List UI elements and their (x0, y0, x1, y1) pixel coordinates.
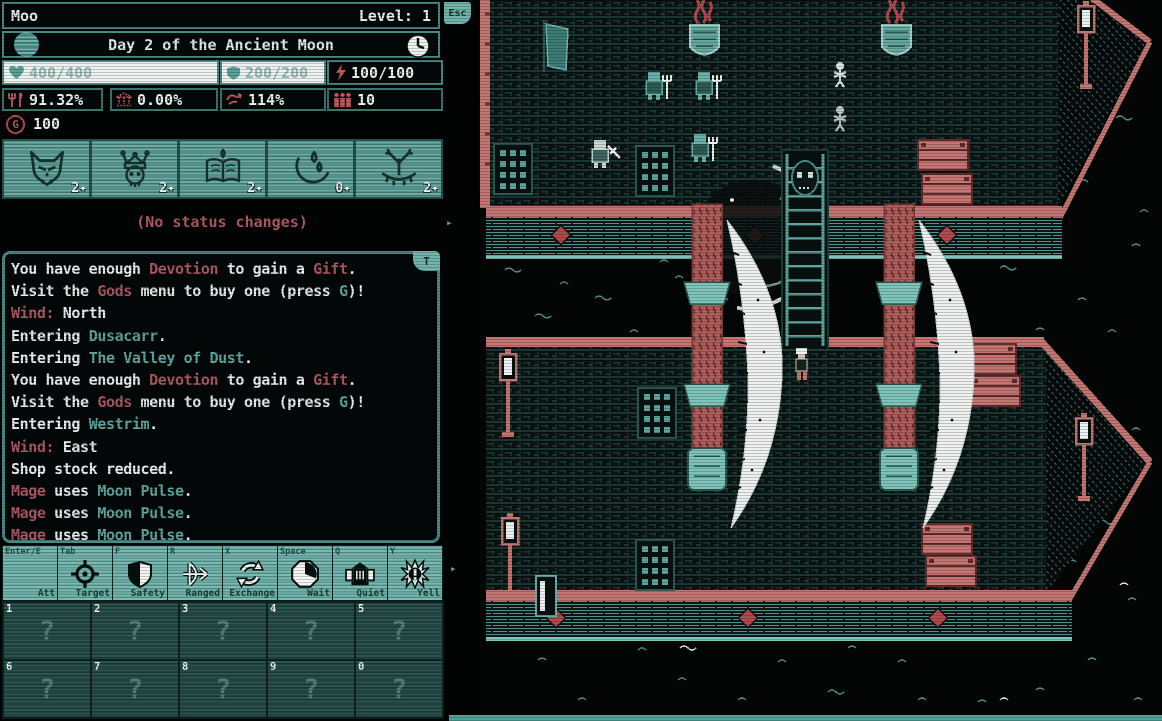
cargo-crate (922, 174, 972, 204)
slot-number: 3 (182, 603, 188, 615)
action-label: Ranged (186, 588, 220, 599)
sigil-moon[interactable]: 0✦ (266, 139, 355, 199)
hotkey-label: R (170, 547, 175, 557)
log-line: Visit the Gods menu to buy one (press G)… (11, 391, 435, 413)
status-line: (No status changes) (0, 213, 444, 231)
hotbar-safety-button[interactable]: F Safety (112, 545, 168, 601)
wind-stat: 114% (220, 88, 326, 111)
slot-number: 7 (94, 661, 100, 673)
quick-slot-9[interactable]: 9? (266, 659, 356, 719)
slot-placeholder: ? (92, 603, 178, 659)
action-label: Wait (307, 588, 330, 599)
slot-number: 9 (270, 661, 276, 673)
deck-flag (544, 20, 568, 72)
food-value: 91.32% (29, 91, 83, 109)
slot-placeholder: ? (92, 661, 178, 717)
deck-grate (494, 144, 532, 194)
crosshair-icon (70, 559, 100, 589)
antler-icon (376, 148, 422, 190)
slot-number: 1 (6, 603, 12, 615)
slot-placeholder: ? (356, 661, 442, 717)
wolf-icon (24, 148, 70, 190)
figurehead-skull (792, 161, 818, 195)
bow-arrow-icon (180, 559, 210, 589)
action-label: Yell (417, 588, 440, 599)
action-label: Safety (131, 588, 165, 599)
ship-bottom[interactable] (486, 337, 1150, 641)
action-label: Att (38, 588, 55, 599)
horn-building-icon (345, 560, 375, 588)
day-banner: Day 2 of the Ancient Moon (2, 31, 440, 58)
hotbar-target-button[interactable]: Tab Target (57, 545, 113, 601)
hotkey-label: Space (280, 547, 306, 557)
hotkey-label: Tab (60, 547, 75, 557)
quick-slot-6[interactable]: 6? (2, 659, 92, 719)
quick-slot-3[interactable]: 3? (178, 601, 268, 661)
burst-icon (400, 559, 430, 589)
heart-icon (8, 65, 25, 80)
crew-villager[interactable] (692, 134, 717, 162)
esc-button[interactable]: Esc (444, 2, 471, 24)
quick-slot-1[interactable]: 1? (2, 601, 92, 661)
log-line: Mage uses Moon Pulse. (11, 502, 435, 524)
health-bar: 400/400 (2, 60, 219, 85)
hotbar-ranged-button[interactable]: R Ranged (167, 545, 223, 601)
tome-icon (201, 148, 245, 190)
crew-icon (333, 92, 352, 108)
energy-bar: 100/100 (327, 60, 443, 85)
moon-drops-icon (288, 148, 334, 190)
quick-slot-8[interactable]: 8? (178, 659, 268, 719)
hotkey-label: Enter/E (5, 547, 41, 557)
hotkey-label: Y (390, 547, 395, 557)
cycle-arrows-icon (235, 559, 265, 589)
crew-villager[interactable] (696, 72, 721, 100)
slot-placeholder: ? (356, 603, 442, 659)
hotbar-quiet-button[interactable]: Q Quiet (332, 545, 388, 601)
sigil-count: 2✦ (423, 181, 439, 196)
cargo-crate (970, 376, 1020, 406)
food-stat: 91.32% (2, 88, 103, 111)
gold-coin-icon: G (6, 115, 25, 134)
sigil-count: 0✦ (335, 181, 351, 196)
hull-planks (486, 601, 1072, 639)
sigil-wolf[interactable]: 2✦ (2, 139, 91, 199)
slot-number: 4 (270, 603, 276, 615)
health-value: 400/400 (29, 64, 92, 82)
quick-slot-7[interactable]: 7? (90, 659, 180, 719)
clock-icon (406, 34, 430, 58)
shield-icon (226, 65, 241, 81)
slot-number: 6 (6, 661, 12, 673)
crew-value: 10 (357, 91, 375, 109)
utensils-icon (8, 92, 24, 108)
sigil-tome[interactable]: 2✦ (178, 139, 267, 199)
panel-arrow-icon[interactable]: ▸ (450, 562, 457, 575)
cargo-crate (918, 140, 968, 170)
hotbar-wait-button[interactable]: Space Wait (277, 545, 333, 601)
log-line: You have enough Devotion to gain a Gift. (11, 258, 435, 280)
energy-value: 100/100 (351, 64, 414, 82)
crowned-skull-icon (113, 148, 157, 190)
deck-rail (486, 590, 1072, 601)
temple-icon (116, 92, 132, 107)
message-log[interactable]: You have enough Devotion to gain a Gift.… (2, 251, 440, 543)
slot-placeholder: ? (268, 661, 354, 717)
crew-villager[interactable] (646, 72, 671, 100)
slot-number: 8 (182, 661, 188, 673)
slot-placeholder: ? (4, 603, 90, 659)
slot-number: 2 (94, 603, 100, 615)
sigil-count: 2✦ (159, 181, 175, 196)
armor-bar: 200/200 (220, 60, 326, 85)
slot-number: 5 (358, 603, 364, 615)
sigil-crowned-skull[interactable]: 2✦ (90, 139, 179, 199)
game-world-view[interactable] (480, 0, 1162, 721)
day-title: Day 2 of the Ancient Moon (108, 36, 334, 54)
burden-stat: 0.00% (110, 88, 218, 111)
crew-stat: 10 (327, 88, 443, 111)
deck-grate (638, 388, 676, 438)
action-label: Target (76, 588, 110, 599)
boarding-ladder[interactable] (782, 150, 828, 350)
hotbar-exchange-button[interactable]: X Exchange (222, 545, 278, 601)
log-line: Entering Dusacarr. (11, 325, 435, 347)
slot-placeholder: ? (4, 661, 90, 717)
action-label: Quiet (356, 588, 385, 599)
sigil-count: 2✦ (247, 181, 263, 196)
hotkey-label: X (225, 547, 230, 557)
quick-slot-5[interactable]: 5? (354, 601, 444, 661)
player-name: Moo (11, 7, 38, 25)
sigil-antler[interactable]: 2✦ (354, 139, 443, 199)
log-line: You have enough Devotion to gain a Gift. (11, 369, 435, 391)
log-line: Mage uses Moon Pulse. (11, 480, 435, 502)
hotkey-label: F (115, 547, 120, 557)
slot-placeholder: ? (268, 603, 354, 659)
slot-placeholder: ? (180, 603, 266, 659)
log-line: Entering The Valley of Dust. (11, 347, 435, 369)
hotbar-attack-button[interactable]: Enter/E Att (2, 545, 58, 601)
quick-slot-4[interactable]: 4? (266, 601, 356, 661)
log-line: Wind: East (11, 436, 435, 458)
action-label: Exchange (229, 588, 275, 599)
log-line: Mage uses Moon Pulse. (11, 524, 435, 543)
cargo-crate (926, 556, 976, 586)
hotkey-label: Q (335, 547, 340, 557)
lightning-icon (333, 64, 347, 81)
armor-value: 200/200 (245, 64, 308, 82)
deck-grate (636, 146, 674, 196)
shield-icon (126, 559, 154, 589)
log-line: Shop stock reduced. (11, 458, 435, 480)
log-tab-button[interactable]: T (413, 251, 440, 271)
log-line: Entering Westrim. (11, 413, 435, 435)
title-bar: Moo Level: 1 (2, 2, 440, 29)
wait-clock-icon (290, 559, 320, 589)
slot-number: 0 (358, 661, 364, 673)
hull-door (536, 576, 556, 616)
deck-grate (636, 540, 674, 590)
log-line: Visit the Gods menu to buy one (press G)… (11, 280, 435, 302)
level-label: Level: 1 (359, 7, 431, 25)
cargo-crate (922, 524, 972, 554)
burden-value: 0.00% (137, 91, 182, 109)
moon-phase-icon (14, 32, 39, 57)
slot-placeholder: ? (180, 661, 266, 717)
panel-arrow-icon[interactable]: ▸ (446, 216, 453, 229)
sigil-count: 2✦ (71, 181, 87, 196)
gold-row: G 100 (6, 112, 60, 136)
wind-value: 114% (248, 91, 284, 109)
wind-icon (226, 92, 243, 107)
log-line: Wind: North (11, 302, 435, 324)
hotbar-yell-button[interactable]: Y Yell (387, 545, 443, 601)
bottom-border-strip (449, 715, 1162, 721)
gold-amount: 100 (33, 115, 60, 133)
quick-slot-2[interactable]: 2? (90, 601, 180, 661)
quick-slot-0[interactable]: 0? (354, 659, 444, 719)
